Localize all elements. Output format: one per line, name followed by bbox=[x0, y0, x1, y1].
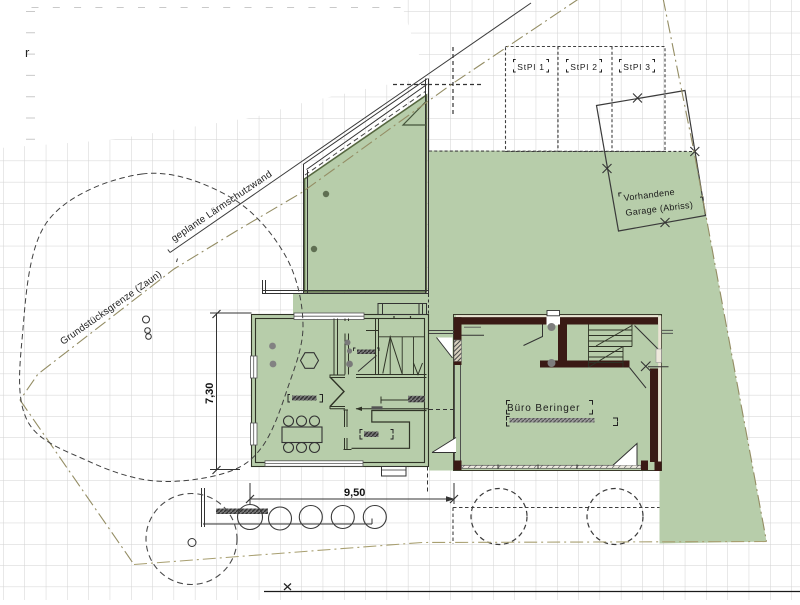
svg-text:9,50: 9,50 bbox=[344, 487, 365, 499]
svg-text:7,30: 7,30 bbox=[204, 383, 216, 404]
svg-text:StPl 1: StPl 1 bbox=[517, 62, 544, 72]
svg-text:StPl 2: StPl 2 bbox=[570, 62, 597, 72]
svg-text:Büro Beringer: Büro Beringer bbox=[507, 403, 580, 414]
svg-text:StPl 3: StPl 3 bbox=[623, 62, 650, 72]
svg-text:r: r bbox=[25, 45, 30, 60]
